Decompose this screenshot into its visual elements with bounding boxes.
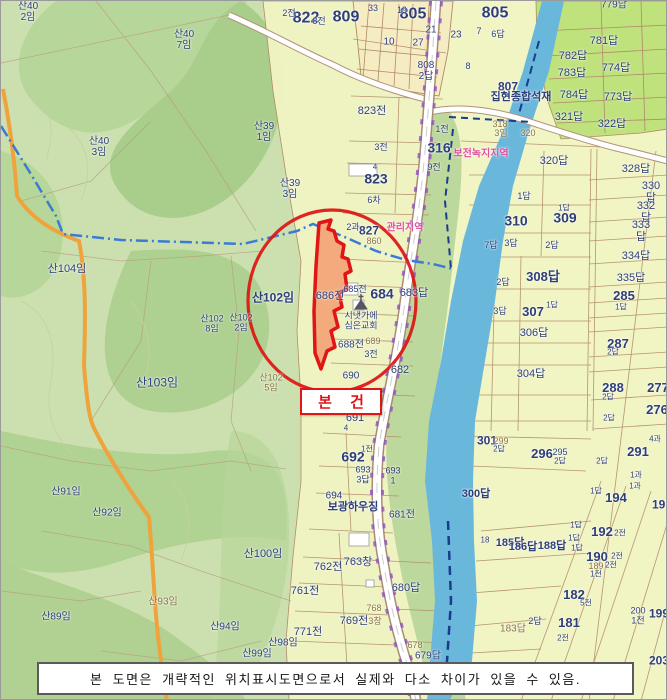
map-label: 287	[607, 337, 629, 351]
map-label: 679답	[415, 652, 441, 663]
map-label: 2답	[596, 458, 608, 467]
map-label: 277	[647, 381, 667, 395]
map-label: 산104임	[48, 264, 87, 276]
map-label: 2답	[607, 349, 619, 358]
map-label: 2답	[528, 617, 541, 627]
map-label: 320답	[540, 156, 568, 168]
map-label: 684	[370, 286, 393, 301]
map-label: 761전	[291, 586, 319, 598]
map-label: 산91임	[51, 488, 81, 499]
map-label: 산102 8임	[200, 314, 223, 333]
map-label: 296	[531, 447, 553, 461]
map-label: 1답	[571, 545, 583, 554]
map-label: 21	[425, 26, 436, 37]
map-label: 18	[481, 537, 490, 546]
map-label: 330답	[642, 181, 660, 205]
map-label: 306답	[520, 328, 548, 340]
map-label: 3전	[374, 143, 387, 153]
map-label: 2전	[614, 530, 626, 539]
map-label: 807	[498, 81, 518, 94]
map-label: 산102 2임	[229, 313, 252, 332]
subject-callout-box: 본 건	[300, 388, 382, 415]
map-label: 23	[450, 31, 461, 42]
map-label: 304답	[517, 369, 545, 381]
map-label: 307	[522, 305, 544, 319]
map-label: 7	[476, 27, 481, 37]
map-label: 860	[366, 237, 381, 247]
map-label: 784답	[560, 90, 588, 102]
map-label: 681전	[389, 511, 415, 522]
map-label: 295	[552, 448, 567, 458]
map-label: 194	[605, 491, 627, 505]
map-label: 285	[613, 289, 635, 303]
map-label: 7답	[484, 241, 497, 251]
map-label: 827	[359, 225, 379, 238]
map-label: 823전	[358, 106, 386, 118]
map-label: 182	[563, 588, 585, 602]
map-label: 1과	[629, 483, 641, 492]
subject-callout-label: 본 건	[318, 391, 371, 412]
map-label: 693 1	[385, 466, 400, 485]
map-label: 332답	[635, 201, 657, 225]
map-label: 334답	[622, 251, 650, 263]
map-label: 2전	[557, 635, 569, 644]
map-label: 19	[397, 6, 407, 16]
map-label: 310	[504, 213, 527, 228]
map-label: 321답	[555, 112, 583, 124]
map-label: 185답	[496, 538, 524, 550]
map-label: 2전	[611, 553, 623, 562]
map-label: 관리지역	[387, 224, 424, 235]
map-label: 산40 3임	[89, 137, 109, 159]
map-label: 682	[391, 365, 409, 377]
map-label: 산102 5임	[259, 373, 282, 392]
map-label: 195	[652, 499, 667, 512]
map-label: 집현종합석재	[491, 92, 552, 104]
map-label: 1전	[435, 125, 448, 135]
map-label: 322답	[598, 119, 626, 131]
map-label: 1답	[517, 192, 530, 202]
map-label: 335답	[617, 273, 645, 285]
map-label: 2답	[493, 446, 505, 455]
map-label: 181	[558, 616, 580, 630]
map-label: 686전	[316, 291, 344, 303]
map-label: 692	[341, 449, 364, 464]
map-label: 680답	[392, 583, 420, 595]
map-label: 1답	[546, 302, 558, 311]
map-label: 774답	[602, 63, 630, 75]
map-label: 3전	[364, 350, 377, 360]
map-label: 822	[293, 9, 320, 26]
map-label: 309	[553, 210, 576, 225]
map-label: 8	[465, 62, 470, 72]
map-label: 1전	[361, 446, 373, 455]
map-label: 산102임	[252, 292, 294, 305]
map-label: 산94임	[210, 623, 240, 634]
map-label: 2과	[346, 223, 359, 233]
map-label: 203	[649, 655, 667, 668]
map-label: 산89임	[41, 613, 71, 624]
map-label: 산98임	[268, 639, 298, 650]
map-label: 809	[333, 8, 360, 25]
map-label: 산39 1임	[254, 122, 274, 144]
map-label: 192	[591, 525, 613, 539]
map-label: 1답	[558, 205, 570, 214]
map-label: 산92임	[92, 509, 122, 520]
map-label: 4	[344, 425, 348, 434]
map-label: 보전녹지지역	[453, 150, 508, 161]
map-label: 2답	[496, 278, 509, 288]
map-label: 5전	[580, 600, 592, 609]
map-label: 328답	[622, 164, 650, 176]
map-label: 1답	[590, 488, 602, 497]
map-label: 300답	[462, 489, 490, 501]
map-label: 33	[368, 4, 378, 14]
map-label: 199	[649, 608, 667, 621]
map-label: 333답	[628, 220, 655, 244]
map-label: 1과	[630, 472, 642, 481]
map-label: 678	[407, 641, 422, 651]
map-label: 3답	[493, 307, 506, 317]
map-label: 186답	[509, 542, 537, 554]
map-label: 2답	[554, 458, 566, 467]
map-label: 769전	[340, 616, 368, 628]
map-label: 301	[477, 435, 497, 448]
map-label: 190	[586, 550, 608, 564]
map-label: 3답	[504, 239, 517, 249]
map-label: 보광하우징	[328, 502, 379, 514]
cadastral-map: 산40 2임8222전산40 7임산40 3임산39 1임산39 3임80933…	[0, 0, 667, 700]
map-label: 산103임	[136, 377, 178, 390]
map-label: 200 1전	[630, 606, 645, 625]
map-label: 2답	[602, 394, 614, 403]
map-label: 693 3답	[355, 465, 370, 484]
map-label: 1답	[568, 535, 580, 544]
map-label: 685전	[343, 285, 366, 295]
map-label: 10	[383, 38, 394, 49]
map-label: 291	[627, 445, 649, 459]
map-label: 781답	[590, 36, 618, 48]
map-label: 189	[588, 562, 603, 572]
map-label: 689	[365, 337, 380, 347]
map-label: 9전	[427, 163, 440, 173]
map-label: 8전	[312, 17, 325, 27]
map-label: 316	[427, 140, 450, 155]
map-label: 805	[400, 5, 427, 22]
map-label: 시냇가에 심은교회	[344, 311, 377, 330]
map-label: 773답	[604, 92, 632, 104]
map-label: 782답	[559, 51, 587, 63]
map-label: 산99임	[242, 650, 272, 661]
map-label: 산40 2임	[18, 2, 38, 24]
map-label: 308답	[526, 270, 560, 284]
map-label: 산93임	[148, 598, 178, 609]
map-label: 3창	[368, 617, 381, 627]
map-label: 2답	[603, 415, 615, 424]
map-label: 318	[492, 120, 507, 130]
map-label: 188답	[538, 541, 566, 553]
map-label: 4	[373, 164, 377, 173]
map-label: 3임	[494, 129, 507, 139]
map-label: 823	[364, 171, 387, 186]
map-label: 6차	[367, 196, 380, 206]
map-label: 808 2답	[418, 61, 435, 83]
map-label: 694	[326, 492, 343, 503]
disclaimer-bar: 본 도면은 개략적인 위치표시도면으로서 실제와 다소 차이가 있을 수 있음.	[37, 662, 634, 695]
map-label: 산100임	[244, 549, 283, 561]
map-label: 768	[366, 604, 381, 614]
map-label: 288	[602, 381, 624, 395]
map-label: 690	[343, 372, 360, 383]
map-label: 276	[646, 403, 667, 417]
map-label: 183답	[500, 625, 526, 636]
map-label: 688전	[338, 341, 364, 352]
labels-layer: 산40 2임8222전산40 7임산40 3임산39 1임산39 3임80933…	[1, 1, 667, 700]
map-label: 산39 3임	[280, 179, 300, 201]
map-label: 783답	[558, 68, 586, 80]
map-label: 779답	[601, 1, 627, 12]
map-label: 299	[493, 437, 508, 447]
map-label: 27	[412, 39, 423, 50]
map-label: 762전	[314, 562, 342, 574]
map-label: 산40 7임	[174, 30, 194, 52]
map-label: 2전	[605, 562, 617, 571]
map-label: 1답	[615, 304, 627, 313]
map-label: 771전	[294, 627, 322, 639]
map-label: 4과	[649, 436, 661, 445]
map-label: 320	[520, 129, 535, 139]
map-label: 805	[482, 4, 509, 21]
map-label: 1전	[590, 571, 602, 580]
map-label: 683답	[400, 288, 428, 300]
disclaimer-text: 본 도면은 개략적인 위치표시도면으로서 실제와 다소 차이가 있을 수 있음.	[90, 669, 581, 688]
map-label: 2답	[545, 241, 558, 251]
map-label: 2전	[282, 9, 295, 19]
map-label: 763창	[344, 557, 372, 569]
map-label: 6답	[491, 30, 504, 40]
map-label: 1답	[570, 522, 582, 531]
